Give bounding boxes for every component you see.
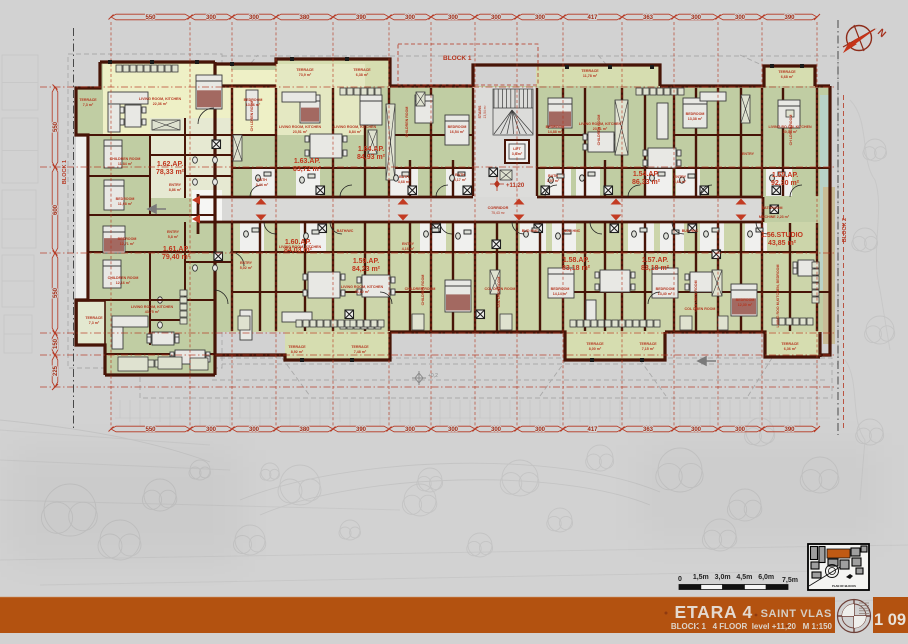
- svg-text:7,3 m²: 7,3 m²: [83, 103, 94, 107]
- svg-text:300: 300: [535, 15, 546, 21]
- svg-text:12,30 m²: 12,30 m²: [738, 303, 753, 307]
- svg-text:92,30 m²: 92,30 m²: [771, 180, 800, 187]
- svg-text:CHILDREN ROOM: CHILDREN ROOM: [110, 157, 141, 161]
- svg-text:363: 363: [643, 15, 654, 21]
- svg-text:550: 550: [145, 427, 156, 433]
- svg-text:79,40 m²: 79,40 m²: [162, 254, 191, 261]
- svg-text:3,07 m²: 3,07 m²: [547, 179, 560, 183]
- svg-text:COL DREN ROOM: COL DREN ROOM: [497, 277, 501, 308]
- svg-text:BATH: BATH: [257, 178, 267, 182]
- svg-text:CORRIDOR: CORRIDOR: [488, 206, 509, 210]
- svg-text:TERRACE: TERRACE: [353, 68, 371, 72]
- svg-text:TERRACE: TERRACE: [778, 70, 796, 74]
- svg-text:5,8 m²: 5,8 m²: [168, 235, 179, 239]
- svg-text:TERRACE: TERRACE: [296, 68, 314, 72]
- svg-text:TERRACE: TERRACE: [586, 342, 604, 346]
- svg-text:1.56.STUDIO: 1.56.STUDIO: [761, 232, 804, 239]
- svg-text:LIVING ROOM, KITCHEN: LIVING ROOM, KITCHEN: [131, 305, 174, 309]
- svg-text:6,36 m²: 6,36 m²: [784, 347, 797, 351]
- svg-text:BUD HNC: BUD HNC: [522, 229, 539, 233]
- svg-text:8,92 m²: 8,92 m²: [291, 350, 304, 354]
- svg-text:ETARA 4: ETARA 4: [674, 602, 753, 622]
- svg-text:BEDROOM: BEDROOM: [546, 125, 565, 129]
- svg-text:BEDROOM: BEDROOM: [656, 287, 675, 291]
- svg-text:7,5m: 7,5m: [782, 577, 798, 584]
- svg-text:300: 300: [249, 15, 260, 21]
- svg-text:BEDROOM: BEDROOM: [116, 197, 135, 201]
- svg-text:7,15 m²: 7,15 m²: [642, 347, 655, 351]
- svg-text:BATH: BATH: [399, 175, 409, 179]
- svg-text:TERRACE: TERRACE: [639, 342, 657, 346]
- svg-text:LIVING ROO M,KITCHEN, BEDROOM: LIVING ROO M,KITCHEN, BEDROOM: [776, 265, 780, 328]
- svg-text:380: 380: [299, 15, 310, 21]
- svg-text:BLOCK 1: BLOCK 1: [62, 160, 68, 184]
- svg-text:TERRACE: TERRACE: [79, 98, 97, 102]
- svg-text:390: 390: [784, 427, 795, 433]
- svg-text:84,93 m²: 84,93 m²: [357, 154, 386, 161]
- svg-text:8,84 m²: 8,84 m²: [349, 130, 362, 134]
- svg-text:BATH: BATH: [455, 173, 465, 177]
- svg-text:12,71 m²: 12,71 m²: [120, 242, 135, 246]
- svg-text:1.62.AP.: 1.62.AP.: [157, 161, 183, 168]
- svg-text:600: 600: [53, 204, 59, 215]
- svg-text:417: 417: [587, 15, 598, 21]
- svg-text:LIFT: LIFT: [513, 147, 521, 151]
- svg-text:43,85 m²: 43,85 m²: [768, 240, 797, 247]
- svg-text:86,33 m²: 86,33 m²: [632, 179, 661, 186]
- svg-text:300: 300: [491, 427, 502, 433]
- svg-text:11,84 m²: 11,84 m²: [118, 162, 133, 166]
- svg-text:5,02 m²: 5,02 m²: [240, 266, 253, 270]
- svg-text:550: 550: [145, 15, 156, 21]
- svg-text:14,88 m²: 14,88 m²: [548, 130, 563, 134]
- svg-text:1 09: 1 09: [874, 611, 906, 629]
- svg-text:300: 300: [691, 427, 702, 433]
- svg-text:23,51 m²: 23,51 m²: [293, 130, 308, 134]
- svg-text:LIVING ROOM, KITCHEN: LIVING ROOM, KITCHEN: [279, 245, 322, 249]
- svg-text:73,9 m²: 73,9 m²: [299, 73, 312, 77]
- svg-text:43,75 m²: 43,75 m²: [145, 310, 160, 314]
- svg-text:CHILDREN ROOM: CHILDREN ROOM: [405, 107, 409, 138]
- svg-text:11,98 m²: 11,98 m²: [118, 202, 133, 206]
- svg-text:3,6 m²: 3,6 m²: [512, 152, 523, 156]
- svg-text:300: 300: [249, 427, 260, 433]
- svg-text:4,16 m²: 4,16 m²: [402, 247, 415, 251]
- svg-text:22,36 m²: 22,36 m²: [153, 102, 168, 106]
- svg-text:BATH: BATH: [548, 174, 558, 178]
- svg-text:84,23 m²: 84,23 m²: [352, 266, 381, 273]
- svg-text:MACHINE 2,23 m²: MACHINE 2,23 m²: [759, 215, 790, 219]
- svg-text:SAINT VLAS: SAINT VLAS: [761, 608, 832, 620]
- svg-text:LIVING ROOM, KITCHEN: LIVING ROOM, KITCHEN: [139, 97, 182, 101]
- svg-text:LIVING ROOM, KITCHEN: LIVING ROOM, KITCHEN: [334, 125, 377, 129]
- svg-text:1.57.AP.: 1.57.AP.: [642, 257, 668, 264]
- svg-text:TERRACE: TERRACE: [581, 69, 599, 73]
- svg-text:1.61.AP.: 1.61.AP.: [163, 246, 189, 253]
- svg-text:300: 300: [206, 427, 217, 433]
- svg-text:ENTRY: ENTRY: [240, 261, 253, 265]
- svg-text:6,0m: 6,0m: [758, 574, 774, 581]
- svg-text:300: 300: [735, 427, 746, 433]
- svg-text:TERRACE: TERRACE: [781, 342, 799, 346]
- svg-text:LIVING ROOM, KITCHEN: LIVING ROOM, KITCHEN: [279, 125, 322, 129]
- svg-text:BLOCK 2: BLOCK 2: [842, 218, 848, 242]
- svg-text:BUD HNC: BUD HNC: [682, 229, 699, 233]
- svg-text:CHILDREN ROOM: CHILDREN ROOM: [405, 287, 436, 291]
- svg-text:13,38 m²: 13,38 m²: [688, 117, 703, 121]
- svg-text:300: 300: [405, 427, 416, 433]
- svg-text:CH LDREN ROOM: CH LDREN ROOM: [789, 115, 793, 146]
- svg-text:7,3 m²: 7,3 m²: [89, 321, 100, 325]
- svg-text:1,5m: 1,5m: [693, 574, 709, 581]
- svg-text:1.54.AP.: 1.54.AP.: [633, 171, 659, 178]
- svg-text:CH LDREN ROOM: CH LDREN ROOM: [250, 101, 254, 132]
- svg-text:CHILDREN ROOM: CHILDREN ROOM: [597, 115, 601, 146]
- svg-text:ENTRY: ENTRY: [674, 175, 687, 179]
- svg-text:1.64.AP.: 1.64.AP.: [358, 146, 384, 153]
- svg-text:417: 417: [587, 427, 598, 433]
- svg-text:BEDROOM: BEDROOM: [448, 125, 467, 129]
- svg-text:83,72 m²: 83,72 m²: [293, 166, 322, 173]
- svg-text:CHILDREN ROOM: CHILDREN ROOM: [108, 276, 139, 280]
- svg-text:CHILDREN ROOM: CHILDREN ROOM: [421, 275, 425, 306]
- svg-text:75,43 m²: 75,43 m²: [491, 211, 505, 215]
- svg-text:83,18 m²: 83,18 m²: [641, 265, 670, 272]
- svg-text:13,40 m²: 13,40 m²: [658, 292, 673, 296]
- svg-text:300: 300: [491, 15, 502, 21]
- svg-text:3,44 m²: 3,44 m²: [256, 183, 269, 187]
- svg-text:STAIRS: STAIRS: [478, 105, 482, 119]
- svg-text:BLOCK 1 4 FLOOR level +11,2: BLOCK 1 4 FLOOR level +11,20 M 1:150: [671, 622, 833, 631]
- svg-text:PLAN OF BLOCKS: PLAN OF BLOCKS: [832, 584, 856, 588]
- svg-text:+11,20: +11,20: [506, 183, 525, 189]
- svg-text:12,16 m²: 12,16 m²: [116, 281, 131, 285]
- svg-text:7,48 m²: 7,48 m²: [354, 350, 367, 354]
- svg-text:300: 300: [448, 15, 459, 21]
- svg-text:390: 390: [356, 15, 367, 21]
- svg-text:COL DREN ROOM: COL DREN ROOM: [685, 307, 716, 311]
- svg-text:ENTRY: ENTRY: [742, 152, 755, 156]
- svg-text:BATH/WC: BATH/WC: [337, 229, 354, 233]
- svg-text:16,54 m²: 16,54 m²: [450, 130, 465, 134]
- svg-text:1.58.AP.: 1.58.AP.: [563, 257, 589, 264]
- svg-text:3,0m: 3,0m: [715, 574, 731, 581]
- svg-text:BEDROOM: BEDROOM: [551, 287, 570, 291]
- svg-text:ENTRY: ENTRY: [167, 230, 180, 234]
- svg-text:6,38 m²: 6,38 m²: [356, 73, 369, 77]
- svg-text:380: 380: [299, 427, 310, 433]
- svg-text:CAB DREN ROOM: CAB DREN ROOM: [694, 280, 698, 311]
- svg-text:1.63.AP.: 1.63.AP.: [294, 158, 320, 165]
- svg-text:4,5m: 4,5m: [736, 574, 752, 581]
- svg-text:LIVING ROOM, KITCHEN: LIVING ROOM, KITCHEN: [341, 285, 384, 289]
- svg-text:13,04 m²: 13,04 m²: [483, 105, 487, 119]
- svg-text:4,68 m²: 4,68 m²: [674, 180, 687, 184]
- svg-text:TERRACE: TERRACE: [85, 316, 103, 320]
- svg-text:300: 300: [405, 15, 416, 21]
- svg-text:300: 300: [691, 15, 702, 21]
- svg-text:225: 225: [53, 365, 59, 376]
- svg-text:1.55.AP.: 1.55.AP.: [772, 172, 798, 179]
- svg-text:390: 390: [784, 15, 795, 21]
- svg-text:36,02 m²: 36,02 m²: [355, 290, 370, 294]
- svg-text:300: 300: [735, 15, 746, 21]
- svg-text:0: 0: [678, 576, 682, 583]
- svg-text:TERRACE: TERRACE: [351, 345, 369, 349]
- svg-text:550: 550: [53, 121, 59, 132]
- svg-text:BEDROOM: BEDROOM: [736, 298, 755, 302]
- svg-text:300: 300: [206, 15, 217, 21]
- svg-text:3,17 m²: 3,17 m²: [454, 178, 467, 182]
- svg-text:1.59.AP.: 1.59.AP.: [353, 258, 379, 265]
- svg-text:BATHROOM: BATHROOM: [762, 206, 783, 210]
- svg-text:83,18 m²: 83,18 m²: [562, 265, 591, 272]
- svg-text:390: 390: [356, 427, 367, 433]
- svg-text:8,00 m²: 8,00 m²: [589, 347, 602, 351]
- svg-text:TERRACE: TERRACE: [288, 345, 306, 349]
- svg-text:78,33 m²: 78,33 m²: [156, 169, 185, 176]
- svg-text:14,14 m²: 14,14 m²: [553, 292, 568, 296]
- svg-text:300: 300: [535, 427, 546, 433]
- svg-text:ENTRY: ENTRY: [402, 242, 415, 246]
- svg-text:+0,2: +0,2: [428, 373, 438, 379]
- svg-text:4,68 m²: 4,68 m²: [398, 180, 411, 184]
- svg-text:11,78 m²: 11,78 m²: [583, 74, 598, 78]
- svg-text:550: 550: [53, 287, 59, 298]
- svg-text:300: 300: [448, 427, 459, 433]
- svg-text:150: 150: [53, 338, 59, 349]
- svg-text:BEDROOM: BEDROOM: [686, 112, 705, 116]
- svg-text:6,68 m²: 6,68 m²: [781, 75, 794, 79]
- svg-text:BEDROOM: BEDROOM: [118, 237, 137, 241]
- svg-text:BUD HNC: BUD HNC: [564, 229, 581, 233]
- svg-text:363: 363: [643, 427, 654, 433]
- svg-text:8,86 m²: 8,86 m²: [169, 188, 182, 192]
- svg-text:ENTRY: ENTRY: [169, 183, 182, 187]
- svg-text:BLOCK 1: BLOCK 1: [443, 55, 472, 62]
